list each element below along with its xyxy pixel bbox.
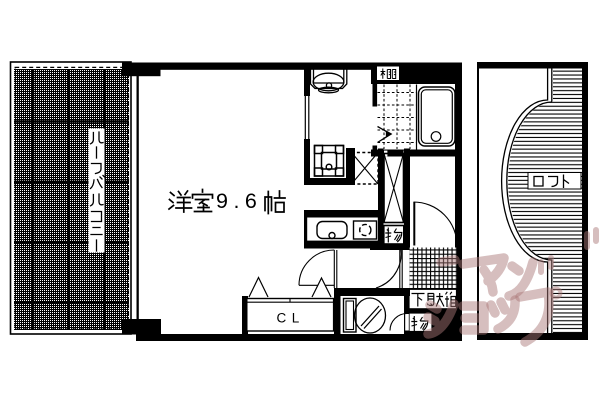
svg-text:9.6: 9.6 [216, 189, 262, 213]
svg-text:CL: CL [277, 311, 305, 326]
